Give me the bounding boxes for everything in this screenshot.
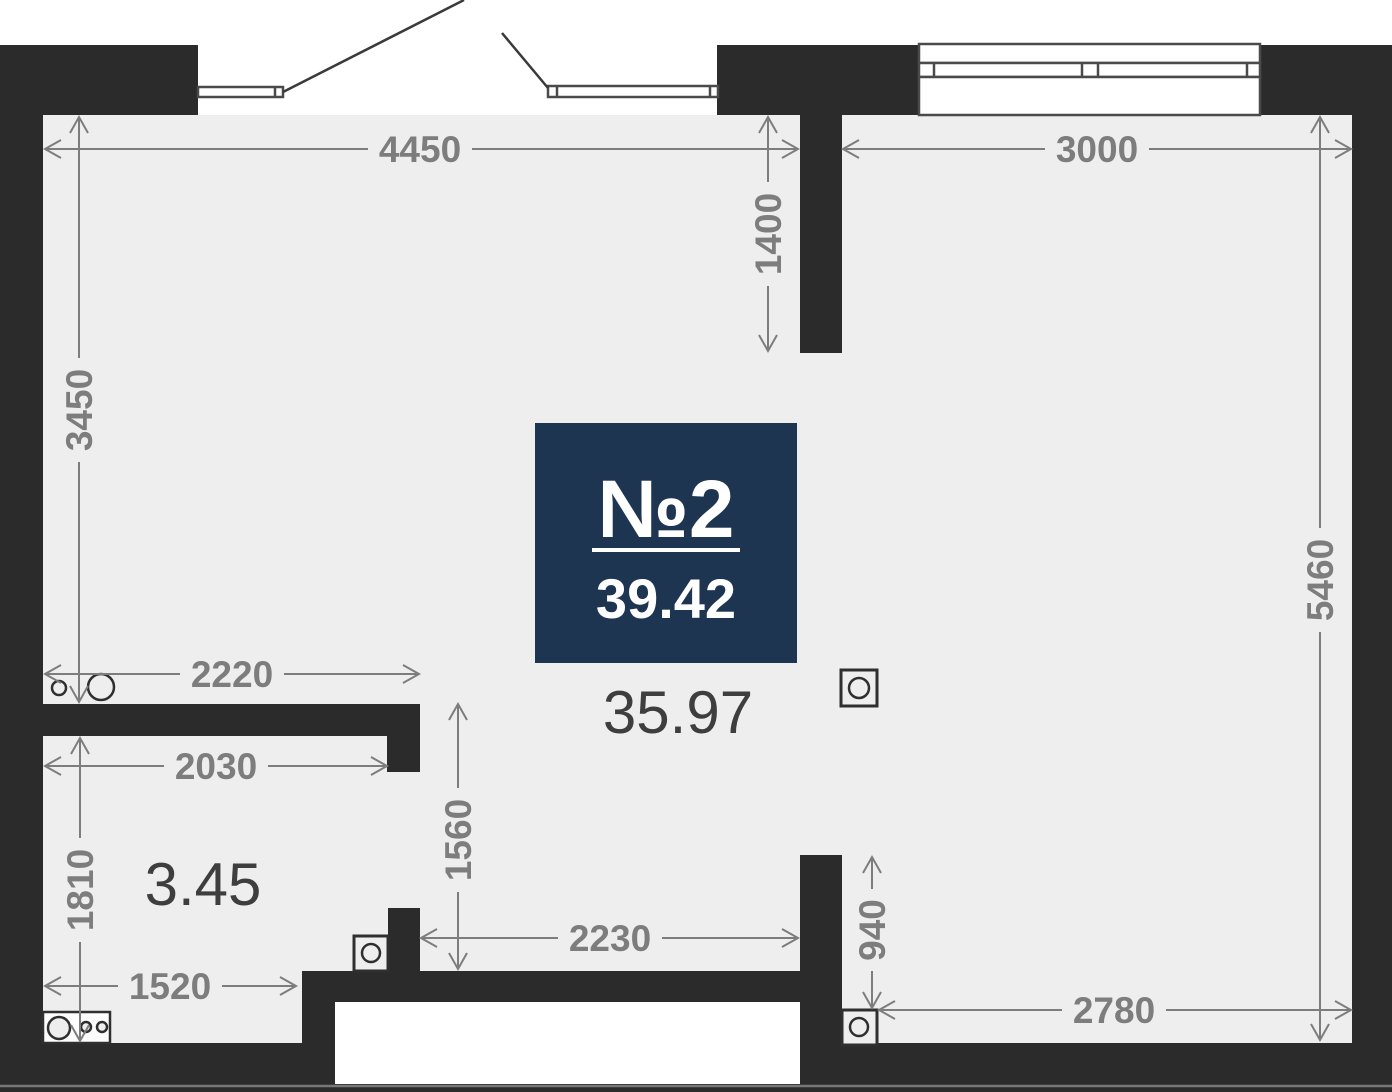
wall-bathroom-stub xyxy=(388,908,420,971)
wall-bathroom-bottom xyxy=(0,1043,335,1092)
outlet-circle-bottom xyxy=(850,1018,868,1036)
dim-top-left: 4450 xyxy=(379,129,461,170)
wall-bottom-band xyxy=(302,971,842,1002)
sink-circle-large xyxy=(88,674,114,700)
window xyxy=(919,44,1260,115)
window-inner-sill xyxy=(919,77,1260,115)
outlet-circle-center xyxy=(849,678,869,698)
wall-bathroom-return xyxy=(387,736,420,772)
dim-right-height: 5460 xyxy=(1300,539,1341,621)
dim-corridor-width: 2230 xyxy=(569,918,651,959)
dim-bath-bottom-width: 1520 xyxy=(129,966,211,1007)
door-swing-line-right xyxy=(502,33,548,88)
dim-left-height: 3450 xyxy=(59,369,100,451)
dim-corridor-height: 1560 xyxy=(438,799,479,881)
wall-bathroom-top xyxy=(0,704,420,736)
wall-top-left-block xyxy=(0,45,198,115)
wall-entry-column xyxy=(800,115,842,353)
wall-top-middle-block xyxy=(717,45,919,115)
terrace-opening xyxy=(335,1002,800,1084)
wall-right xyxy=(1352,45,1392,1092)
dim-top-right: 3000 xyxy=(1056,129,1138,170)
stove-burner-large xyxy=(48,1017,70,1039)
bathroom-area-label: 3.45 xyxy=(145,851,262,918)
sink-circle-small xyxy=(52,681,66,695)
entrance-doors xyxy=(198,0,718,97)
wall-left xyxy=(0,45,43,1092)
floor-plan: 4450 3000 1400 3450 5460 2220 2030 xyxy=(0,0,1392,1092)
door-swing-line-left xyxy=(283,0,464,92)
window-frame-band xyxy=(919,63,1260,77)
dim-bath-height: 1810 xyxy=(60,849,101,931)
dim-bottom-right-width: 2780 xyxy=(1073,990,1155,1031)
wall-bottom-right xyxy=(800,1043,1392,1092)
door-threshold-right xyxy=(548,86,718,97)
door-threshold-left xyxy=(198,87,283,97)
dim-entry-depth: 1400 xyxy=(748,193,789,275)
unit-area-value: 39.42 xyxy=(596,567,736,630)
window-outer-sill xyxy=(919,44,1260,63)
main-room-area-label: 35.97 xyxy=(603,679,753,746)
stove-burner-small-b xyxy=(97,1022,107,1032)
dim-right-stub-height: 940 xyxy=(852,899,893,961)
dim-bath-top-width: 2220 xyxy=(191,654,273,695)
outlet-circle-corridor xyxy=(362,944,380,962)
unit-badge: №2 39.42 xyxy=(535,423,797,663)
unit-number: №2 xyxy=(597,464,734,555)
dim-bath-width: 2030 xyxy=(175,746,257,787)
